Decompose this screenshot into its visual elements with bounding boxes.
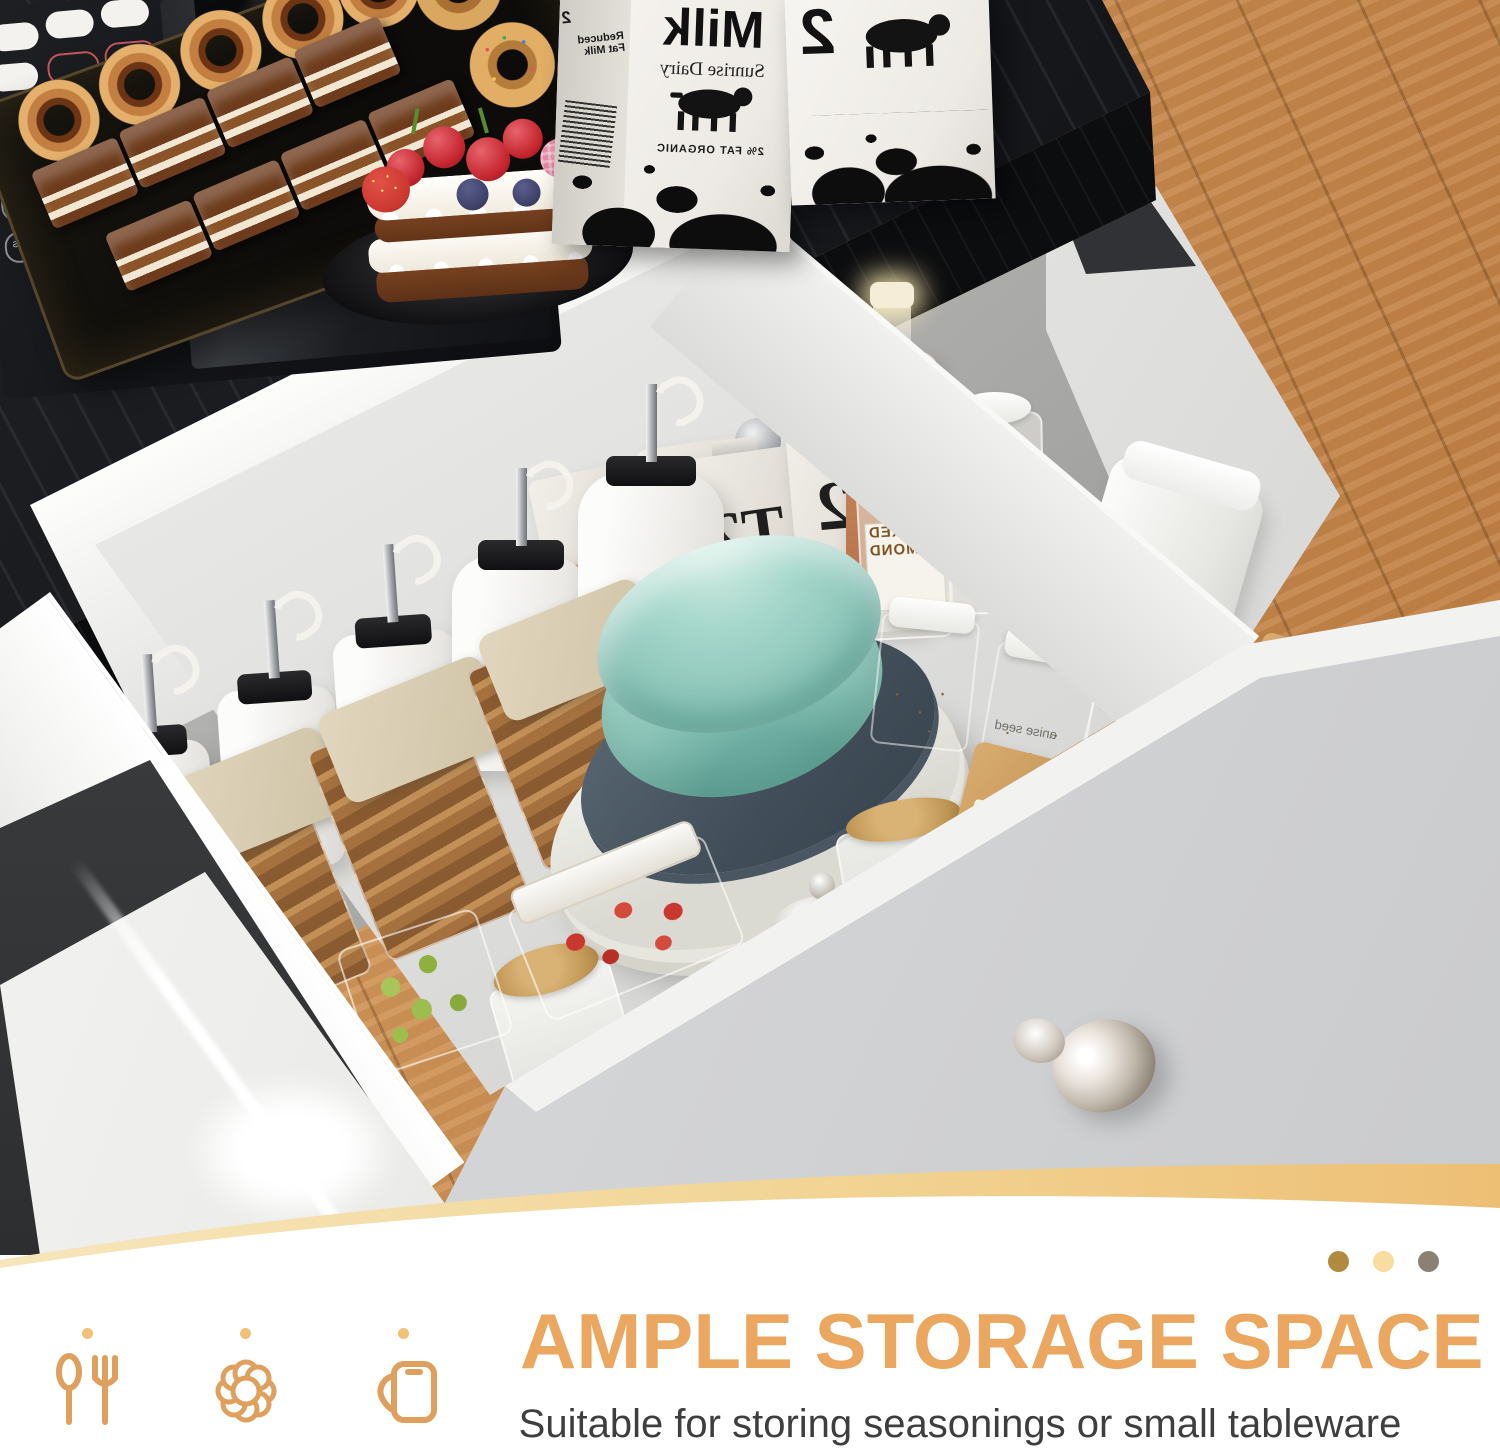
icon-dot [240, 1328, 251, 1339]
milk-carton-front: 2 Reduced Fat Milk Milk Sunrise Dairy 2%… [552, 0, 799, 252]
milk-title: Milk [662, 0, 765, 61]
cherry [422, 125, 467, 170]
chocolate-cake-piece [192, 159, 301, 252]
spice-jar-small [869, 611, 980, 753]
cow-icon [843, 7, 965, 73]
dot-brown [1328, 1251, 1349, 1272]
decorative-dots [1328, 1251, 1439, 1272]
microwave-button [0, 21, 40, 52]
microwave-button [45, 8, 95, 39]
sauce-bottle-cap [870, 282, 914, 308]
kitchen-photo: BIO PAS GNOCCHETTI T2 T2 TEA SMOKED [0, 0, 1500, 1255]
icon-dot [82, 1328, 93, 1339]
anise-jar-label: anise seed [994, 716, 1059, 742]
flower-icon [208, 1348, 284, 1434]
page-subtitle: Suitable for storing seasonings or small… [440, 1402, 1480, 1447]
cow-icon [658, 79, 764, 137]
utensils-icon [50, 1348, 126, 1434]
milk-splatter [789, 109, 996, 205]
product-marketing-image: BIO PAS GNOCCHETTI T2 T2 TEA SMOKED [0, 0, 1500, 1454]
dot-gray [1418, 1251, 1439, 1272]
pitcher-icon [366, 1348, 442, 1434]
milk-front-label: Milk Sunrise Dairy 2% FAT ORGANIC [631, 0, 794, 161]
milk-number: 2 [798, 0, 836, 69]
microwave-button [100, 0, 150, 29]
icon-dot [398, 1328, 409, 1339]
milk-carton-back: 2 [784, 0, 995, 205]
chocolate-cake-piece [104, 199, 213, 292]
milk-side-text: Reduced Fat Milk [559, 30, 625, 61]
milk-side-number: 2 [560, 8, 572, 29]
milk-splatter [552, 136, 794, 252]
page-title: AMPLE STORAGE SPACE [520, 1296, 1466, 1387]
dot-cream [1373, 1251, 1394, 1272]
